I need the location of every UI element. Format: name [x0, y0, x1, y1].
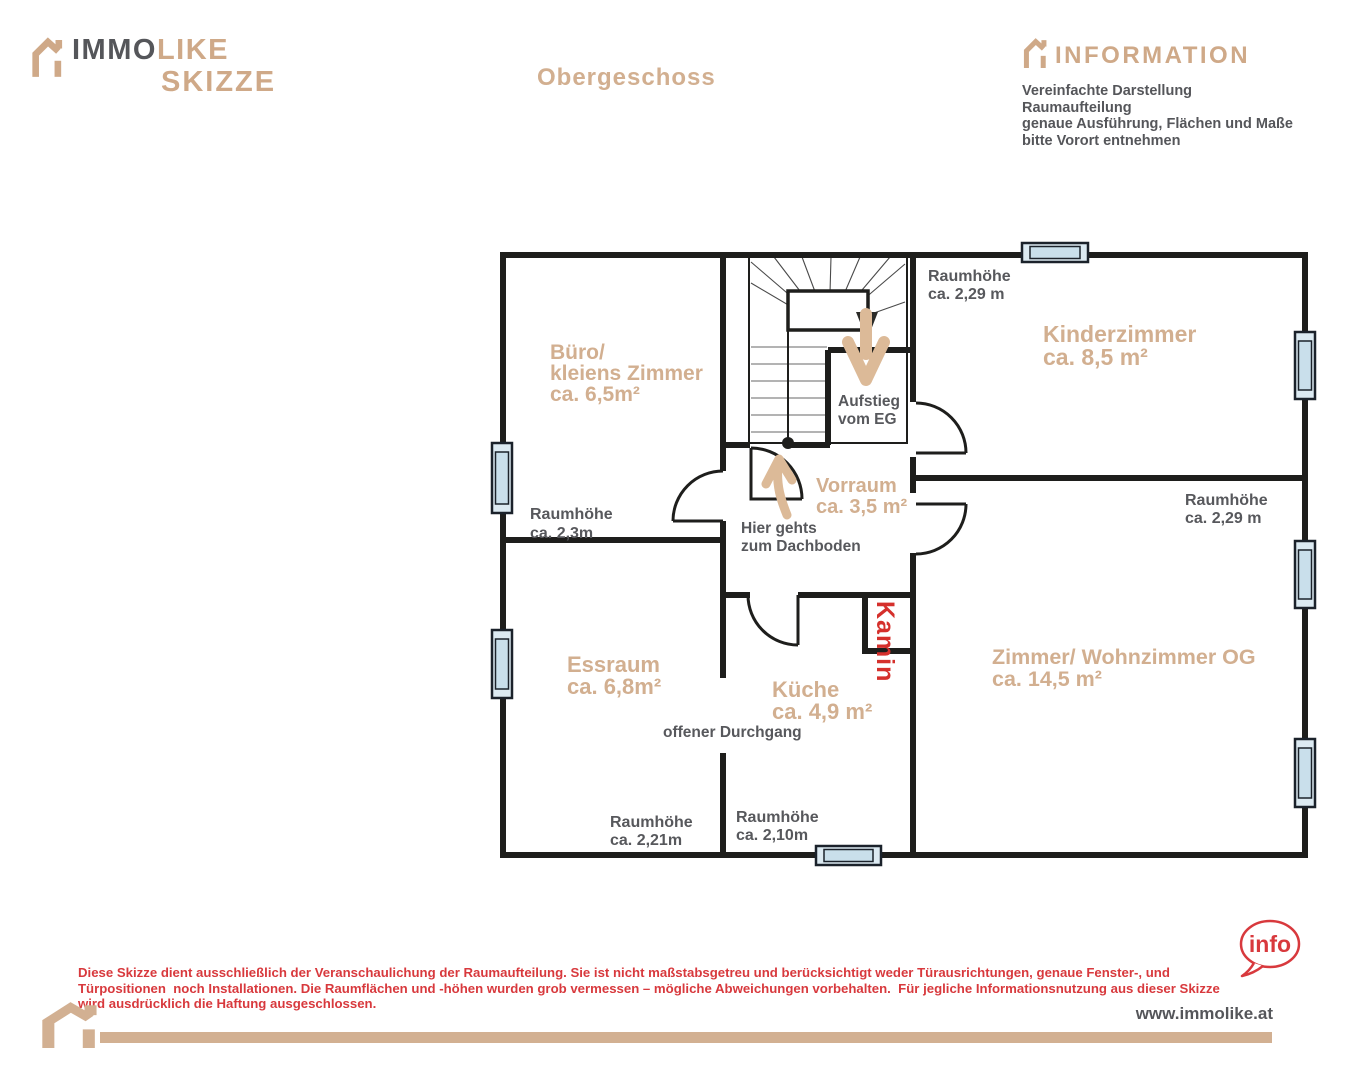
plan-annotations: Raumhöhe ca. 2,3m Raumhöhe ca. 2,29 m Ra…	[530, 268, 1272, 849]
raumhoehe-wohnzimmer: Raumhöhe ca. 2,29 m	[1185, 492, 1272, 527]
room-label-wohnzimmer: Zimmer/ Wohnzimmer OG ca. 14,5 m²	[992, 645, 1262, 691]
window-essraum-left	[492, 630, 512, 698]
raumhoehe-essraum: Raumhöhe ca. 2,21m	[610, 814, 697, 849]
room-label-vorraum: Vorraum ca. 3,5 m²	[816, 475, 908, 518]
disclaimer-line: Türpositionen noch Installationen. Die R…	[78, 981, 1220, 997]
door-kinderzimmer	[916, 403, 966, 453]
raumhoehe-buero: Raumhöhe ca. 2,3m	[530, 506, 617, 542]
floorplan-drawing: Büro/ kleiens Zimmer ca. 6,5m² Kinderzim…	[0, 0, 1350, 1080]
raumhoehe-kinderzimmer: Raumhöhe ca. 2,29 m	[928, 268, 1015, 303]
aufstieg-label: Aufstieg vom EG	[838, 393, 904, 428]
stair-well	[788, 291, 868, 330]
door-kueche	[748, 595, 798, 645]
disclaimer-line: wird ausdrücklich die Haftung ausgeschlo…	[78, 996, 1220, 1012]
house-footer-icon	[38, 1002, 100, 1053]
window-wohnzimmer-right-upper	[1295, 541, 1315, 608]
window-kinderzimmer-top	[1022, 243, 1088, 262]
door-buero	[673, 471, 723, 521]
dachboden-arrow-icon	[766, 459, 792, 515]
kamin-label: Kamin	[871, 601, 899, 682]
room-label-buero: Büro/ kleiens Zimmer ca. 6,5m²	[550, 341, 709, 406]
room-label-kinderzimmer: Kinderzimmer ca. 8,5 m²	[1043, 321, 1203, 370]
info-badge-text: info	[1249, 931, 1291, 957]
dachboden-label: Hier gehts zum Dachboden	[741, 520, 861, 555]
window-wohnzimmer-right-lower	[1295, 739, 1315, 807]
room-label-kueche: Küche ca. 4,9 m²	[772, 677, 872, 724]
durchgang-label: offener Durchgang	[663, 724, 802, 741]
room-labels: Büro/ kleiens Zimmer ca. 6,5m² Kinderzim…	[550, 321, 1262, 724]
website-url: www.immolike.at	[1136, 1004, 1273, 1024]
raumhoehe-kueche: Raumhöhe ca. 2,10m	[736, 809, 823, 844]
footer-accent-bar	[100, 1032, 1272, 1043]
window-kinderzimmer-right	[1295, 332, 1315, 399]
disclaimer-text: Diese Skizze dient ausschließlich der Ve…	[78, 965, 1220, 1012]
floorplan-sketch-page: IMMOLIKE SKIZZE Obergeschoss INFORMATION…	[0, 0, 1350, 1080]
info-bubble-icon: info	[1236, 918, 1304, 985]
window-kueche-bottom	[816, 846, 881, 865]
window-buero-left	[492, 443, 512, 513]
door-wohnzimmer	[916, 504, 966, 554]
disclaimer-line: Diese Skizze dient ausschließlich der Ve…	[78, 965, 1220, 981]
room-label-essraum: Essraum ca. 6,8m²	[567, 652, 666, 699]
